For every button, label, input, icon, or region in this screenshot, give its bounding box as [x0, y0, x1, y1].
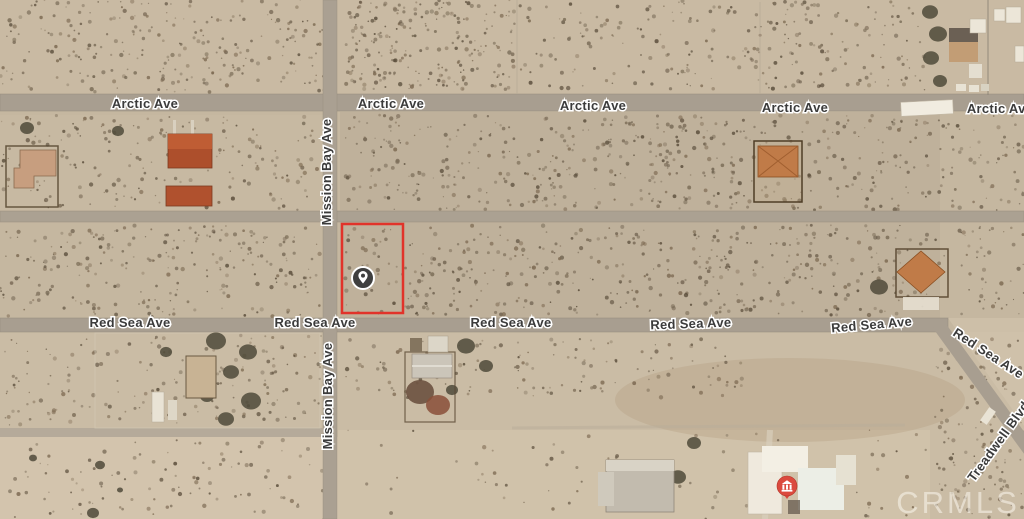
tree — [87, 508, 99, 518]
trailer — [152, 392, 164, 422]
white-building-complex — [748, 446, 856, 514]
subject-location-marker[interactable] — [352, 267, 374, 289]
house-wing — [598, 472, 614, 506]
tree — [223, 365, 239, 379]
shed — [428, 336, 448, 352]
tree — [117, 488, 123, 493]
tree — [929, 26, 947, 41]
crmls-watermark: CRMLS — [896, 485, 1020, 519]
street-label: Arctic Ave — [967, 101, 1024, 116]
road-unnamed — [0, 211, 1024, 222]
shed — [969, 64, 982, 78]
driveway — [173, 120, 176, 134]
shed — [168, 400, 177, 420]
tree — [446, 385, 458, 395]
street-label: Red Sea Ave — [89, 315, 170, 330]
vehicle — [981, 84, 989, 91]
street-label: Arctic Ave — [358, 96, 424, 111]
tree — [870, 279, 888, 294]
street-label: Red Sea Ave — [650, 315, 732, 333]
trailer — [994, 9, 1005, 21]
tree — [923, 51, 939, 65]
dirt-patch — [615, 358, 965, 442]
trailer — [1006, 7, 1021, 23]
tree — [687, 437, 701, 449]
roof-highlight — [606, 460, 674, 471]
tree — [206, 333, 226, 350]
house-roof — [166, 186, 212, 206]
terrain-region — [0, 437, 338, 519]
house-roof — [186, 356, 216, 398]
tree — [933, 75, 947, 87]
trailer — [1015, 46, 1024, 62]
patio — [949, 42, 978, 62]
white-building — [901, 100, 954, 117]
street-label: Mission Bay Ave — [320, 343, 335, 450]
driveway — [903, 297, 939, 310]
tree — [457, 338, 475, 353]
tree — [29, 455, 37, 462]
vehicle — [969, 85, 979, 92]
tree — [20, 122, 34, 134]
shadow — [788, 500, 800, 514]
tree — [218, 412, 234, 426]
satellite-map: Arctic AveArctic AveArctic AveArctic Ave… — [0, 0, 1024, 519]
street-label: Mission Bay Ave — [319, 119, 334, 226]
fenced-lot-house-center — [754, 141, 802, 202]
street-label: Arctic Ave — [762, 100, 828, 115]
roof-highlight — [168, 134, 212, 149]
vehicle — [956, 84, 966, 91]
dirt-mound — [426, 395, 450, 415]
tree — [241, 393, 261, 410]
shed — [410, 338, 422, 352]
terrain-region — [0, 0, 1024, 94]
tree — [479, 360, 493, 372]
tree — [112, 126, 124, 136]
tree — [239, 344, 257, 359]
building — [836, 455, 856, 485]
driveway — [191, 120, 194, 134]
street-label: Arctic Ave — [112, 96, 178, 111]
street-label: Red Sea Ave — [470, 315, 551, 330]
gray-roof-house-bottom — [598, 460, 674, 512]
street-label: Arctic Ave — [560, 98, 626, 113]
pin-hole — [361, 274, 365, 278]
tree — [160, 347, 172, 357]
map-canvas: Arctic AveArctic AveArctic AveArctic Ave… — [0, 0, 1024, 519]
tree — [922, 5, 938, 19]
tree — [95, 461, 105, 470]
street-label: Red Sea Ave — [274, 315, 355, 330]
trailer — [970, 19, 986, 33]
road-dirt-bottom-left — [0, 428, 335, 437]
